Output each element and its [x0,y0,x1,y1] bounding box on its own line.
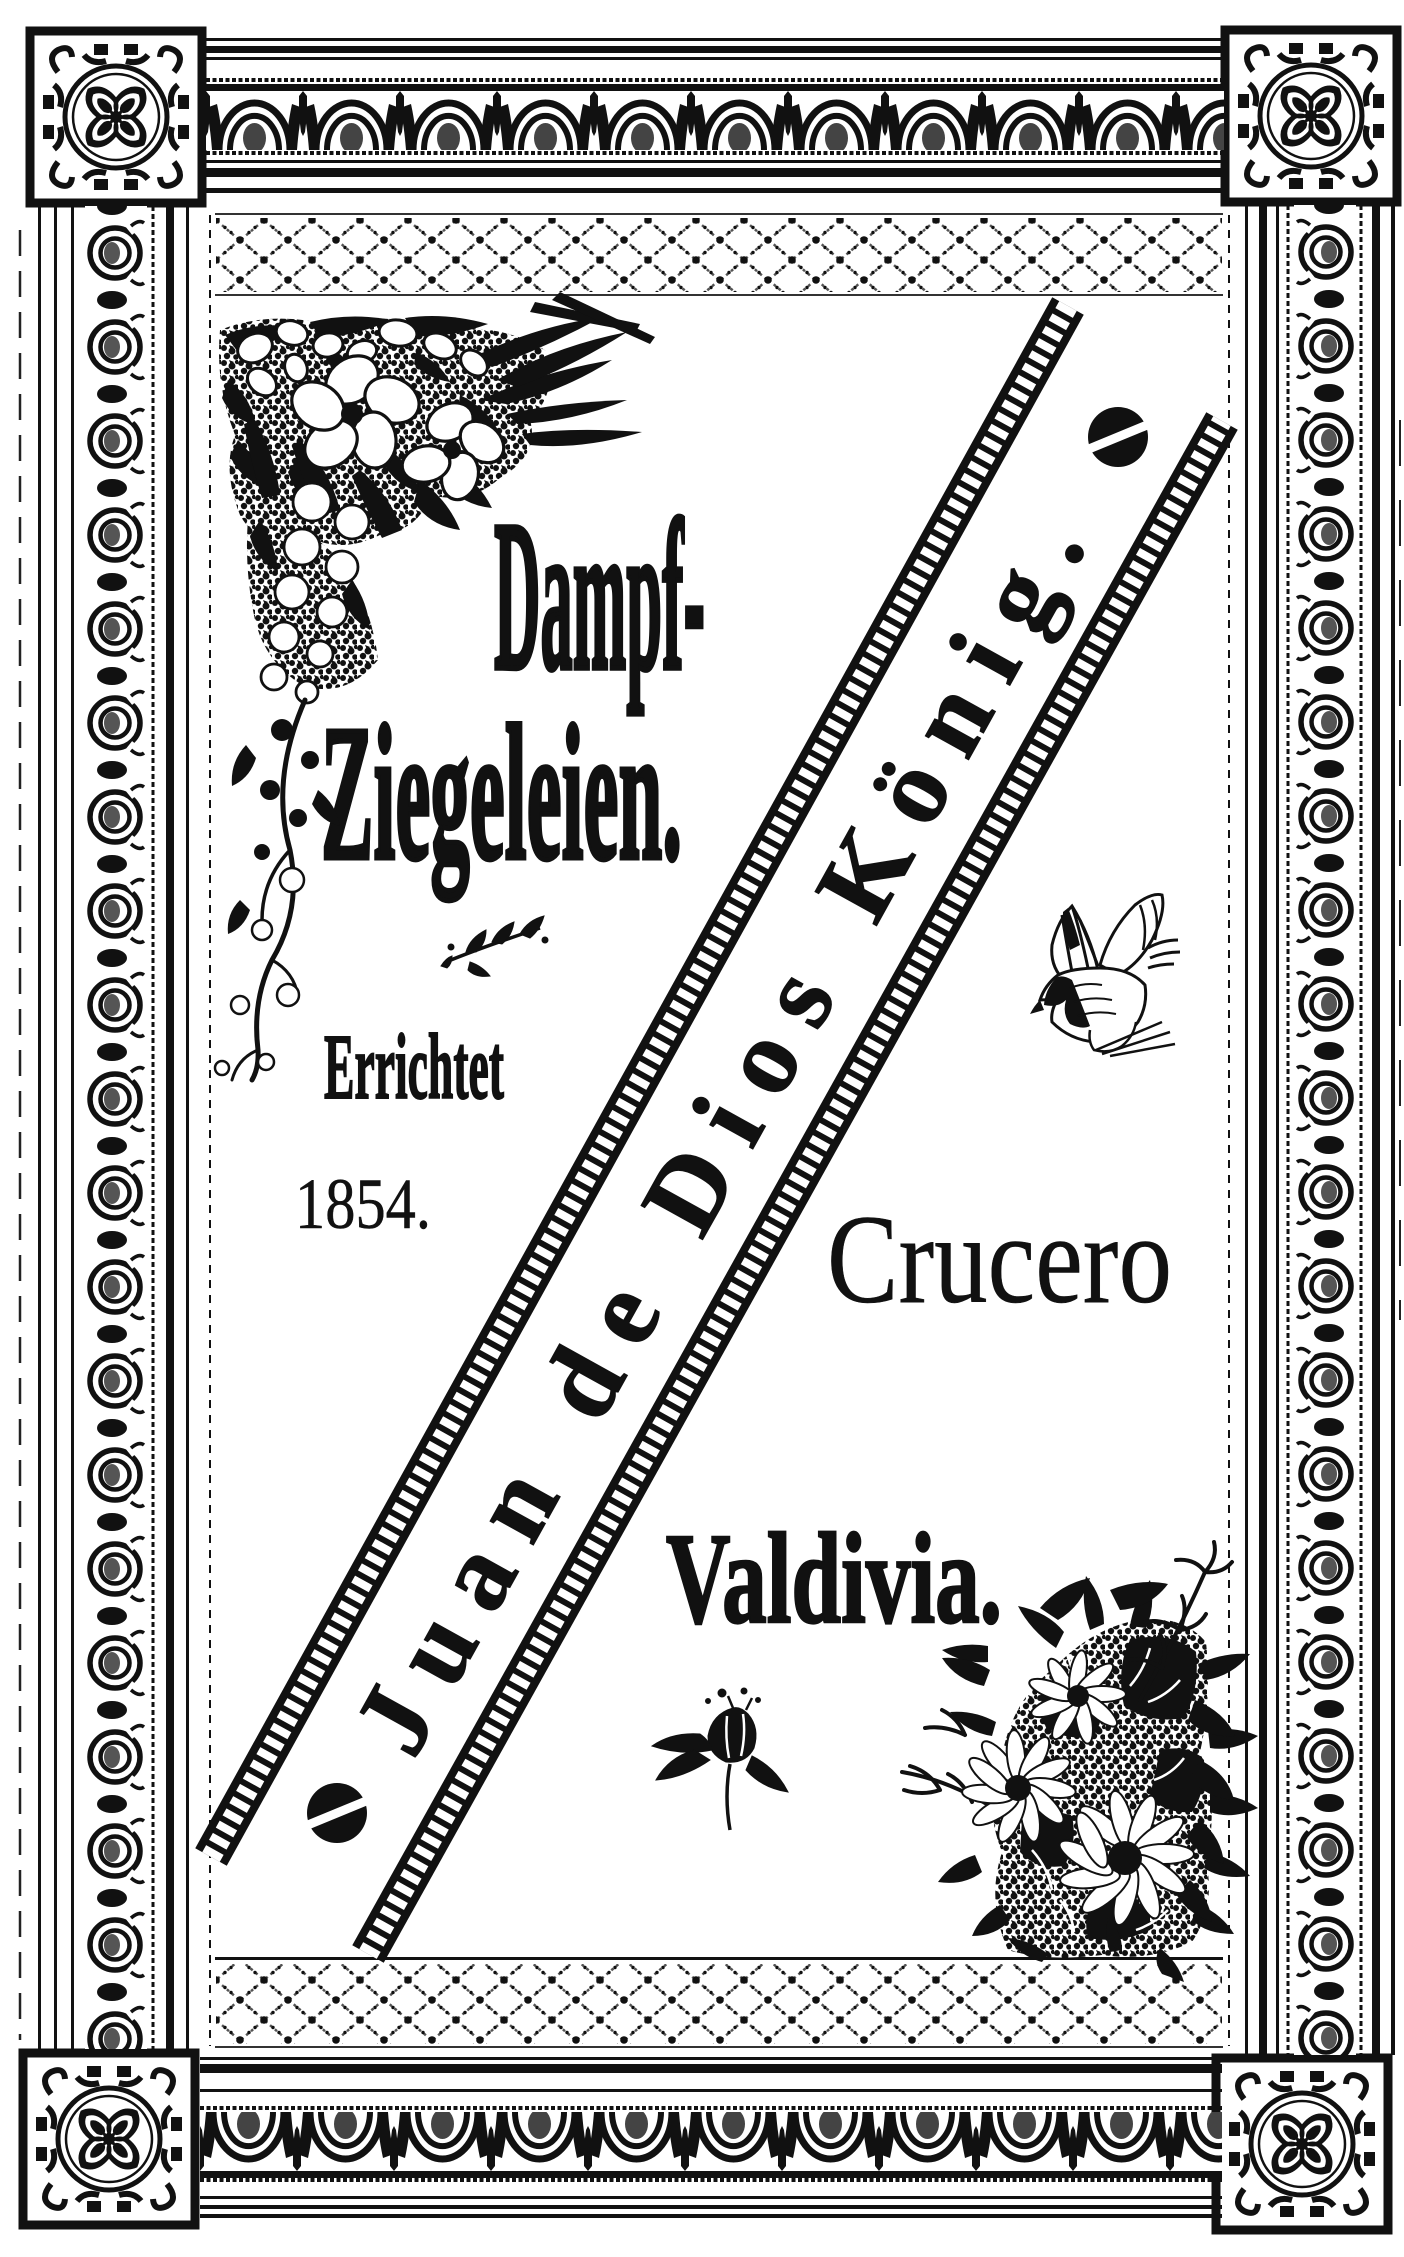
svg-text:Valdivia.: Valdivia. [666,1508,1002,1651]
svg-text:Ziegeleien.: Ziegeleien. [321,687,682,901]
svg-text:Errichtet: Errichtet [324,1015,504,1119]
svg-text:1854.: 1854. [295,1164,431,1244]
svg-text:Dampf-: Dampf- [494,477,705,716]
svg-text:Crucero: Crucero [827,1190,1172,1330]
